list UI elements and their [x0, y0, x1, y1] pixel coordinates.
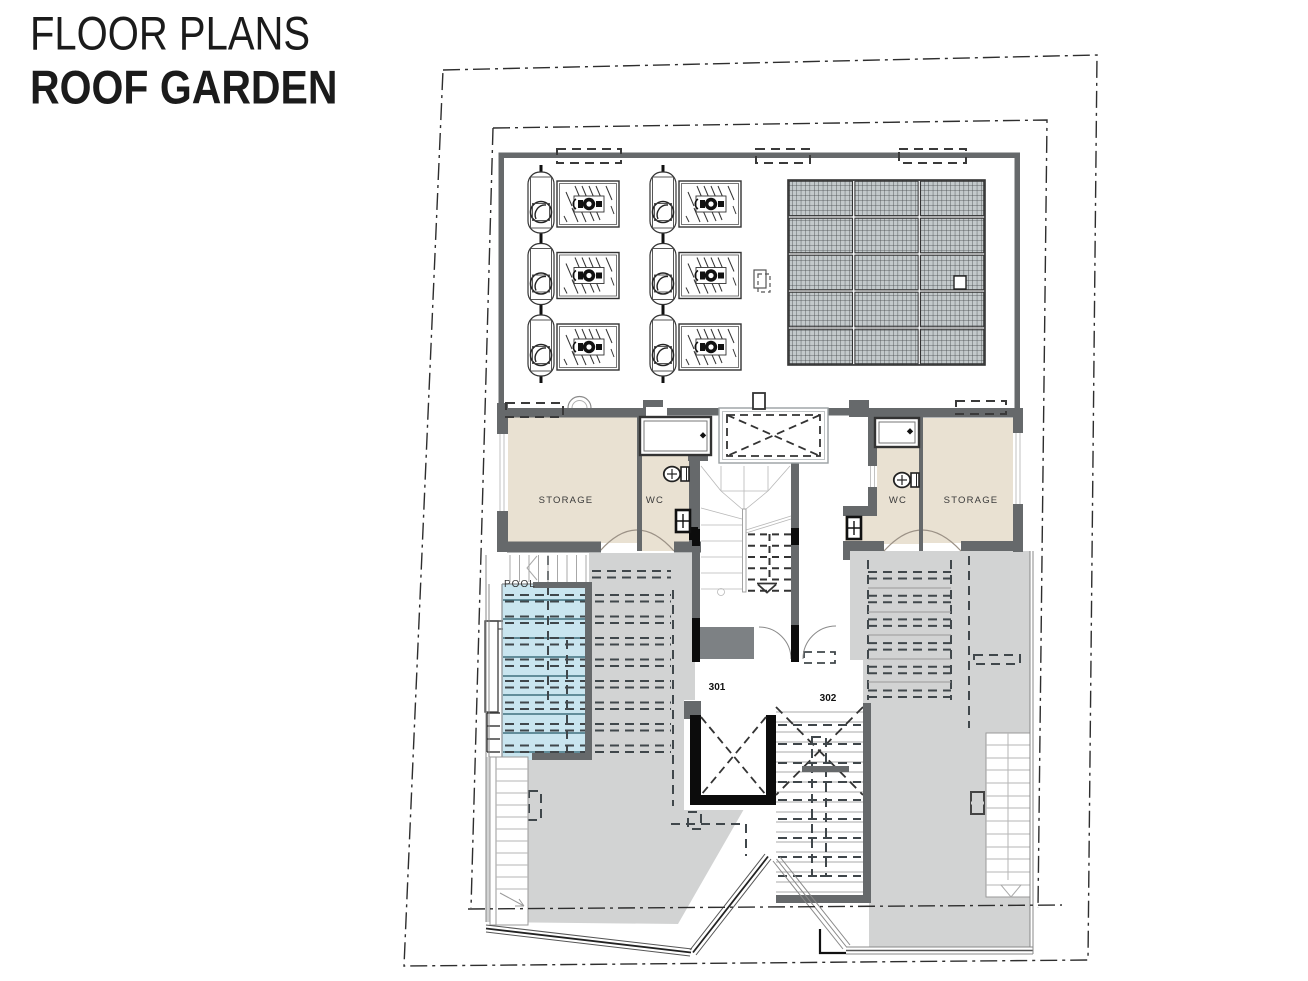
svg-text:WC: WC	[646, 495, 664, 506]
svg-text:WC: WC	[889, 495, 907, 506]
svg-text:STORAGE: STORAGE	[539, 495, 594, 506]
svg-text:301: 301	[709, 682, 726, 693]
svg-text:302: 302	[820, 693, 837, 704]
svg-text:STORAGE: STORAGE	[944, 495, 999, 506]
